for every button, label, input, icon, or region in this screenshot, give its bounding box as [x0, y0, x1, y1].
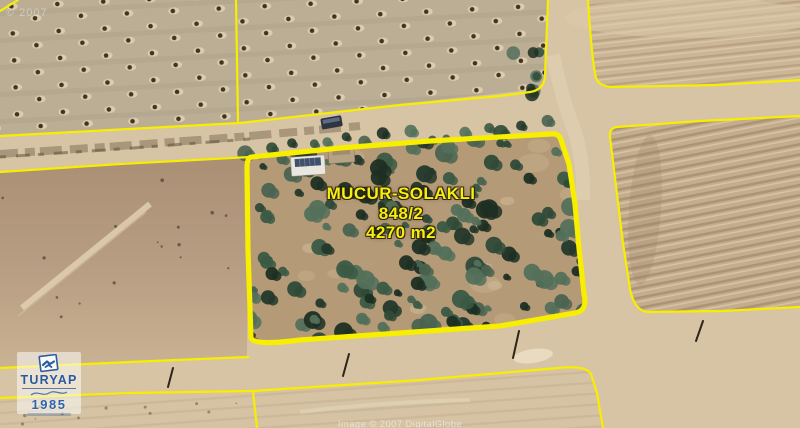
- logo-year-text: 1985: [17, 398, 81, 411]
- logo-divider: [22, 388, 76, 389]
- field-west: [0, 156, 249, 367]
- orchard-field-northwest: [0, 0, 238, 135]
- parcel-label: MUCUR-SOLAKLI 848/2 4270 m2: [327, 184, 476, 243]
- copyright-watermark-bottom: Image © 2007 DigitalGlobe: [338, 419, 462, 428]
- parcel-number-label: 848/2: [327, 204, 476, 224]
- copyright-watermark-topleft: © 2007: [6, 7, 48, 19]
- logo-footer-bar: [27, 413, 71, 416]
- satellite-listing-image: MUCUR-SOLAKLI 848/2 4270 m2 TURYAP 1985 …: [0, 0, 800, 428]
- handshake-icon: [35, 354, 63, 374]
- parcel-name-label: MUCUR-SOLAKLI: [327, 184, 476, 204]
- turyap-logo: TURYAP 1985: [17, 352, 81, 414]
- logo-brand-text: TURYAP: [17, 374, 81, 387]
- parcel-area-label: 4270 m2: [327, 223, 476, 243]
